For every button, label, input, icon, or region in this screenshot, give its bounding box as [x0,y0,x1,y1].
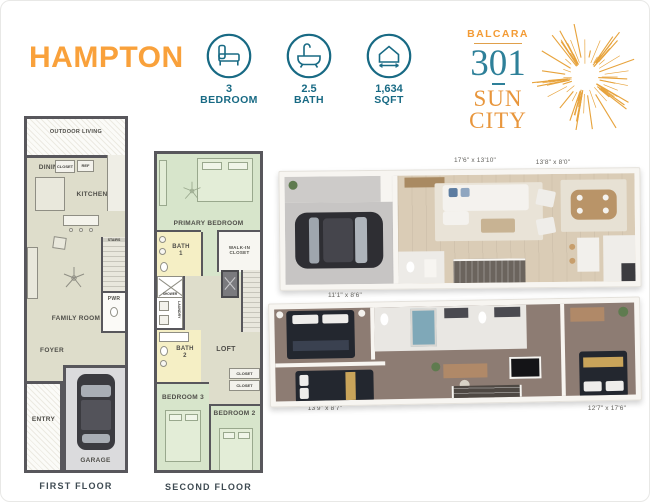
primary-bedroom-label: PRIMARY BEDROOM [157,220,260,227]
island-3d [577,238,599,272]
accent-chair-3d [535,188,556,207]
blanket-3d [293,340,349,351]
car-roof-3d [323,218,353,262]
accent-chair-3d [536,217,557,236]
pillow-3d [461,188,470,197]
logo-city-text: CITY [461,110,535,132]
vanity-3d [424,259,436,277]
bed3-b-3d [295,370,374,402]
toilet-3d [406,261,414,272]
pillow-3d [584,381,602,391]
lamp-3d [276,311,283,318]
bedroom-2-bed-2d [219,428,253,470]
place-setting [577,195,583,201]
room-garage: GARAGE [63,365,125,470]
shower-3d [410,308,437,346]
closet-chip: CLOSET [55,160,75,173]
stat-bath: 2.5 BATH [277,33,341,107]
plan-title: HAMPTON [29,43,184,73]
bed-icon [197,33,261,79]
sink-icon [160,360,167,367]
sunburst-graphic [532,24,638,130]
baths-3d [374,305,527,352]
dryer-icon [159,315,169,325]
ceiling-fan-icon [61,265,87,291]
bedroom-3-bed-2d [165,410,201,462]
desk-3d [443,363,487,378]
powder-3d [398,251,444,283]
garage-3d [285,202,394,285]
closet-chip-upper: CLOSET [229,368,260,379]
washer-icon [159,301,169,311]
bedroom-3-label: BEDROOM 3 [157,394,209,401]
place-setting [603,207,609,213]
car-windshield [81,385,111,397]
place-setting [577,208,583,214]
sqft-icon [357,33,421,79]
interior-wall [275,361,385,367]
car-windshield-3d [355,217,367,263]
sink-icon [159,236,166,243]
bath-icon [277,33,341,79]
room-entry: ENTRY [27,381,63,470]
wall [157,382,209,384]
dining-table [35,177,65,211]
laundry-2d: LAUNDRY [157,298,183,330]
car-roof [81,400,111,430]
coffee-table-3d [481,218,515,232]
pillow-3d [322,314,348,323]
loft-label: LOFT [201,346,251,354]
sink-icon [159,248,166,255]
place-setting [603,194,609,200]
kitchen-counter [107,155,125,211]
car-rear-glass [309,217,319,263]
render-first-floor-3d [278,167,641,291]
porch-3d [284,176,380,203]
bedroom-label: BEDROOM [197,95,261,107]
hampton-floorplan-sheet: HAMPTON 3 BEDROOM 2.5 BATH [0,0,650,502]
toilet-icon [160,262,168,272]
pillow [223,432,235,439]
car-rear-window [82,434,110,443]
render2-floor [274,303,636,402]
dresser-3d [570,307,604,322]
bath-label: BATH [277,95,341,107]
room-bath-2: BATH 2 [157,330,201,382]
logo-brand-text: BALCARA [461,28,535,40]
stool [79,228,83,232]
stairs-second-floor [241,270,260,332]
first-floor-plan: OUTDOOR LIVING DINING CLOSET REF PANTRY … [24,116,128,473]
ceiling-fan-icon [181,180,203,202]
stairs-3d [453,258,525,283]
sqft-label: SQFT [357,95,421,107]
kitchen-island [63,215,99,226]
tv-3d [509,356,541,379]
vanity-3d [494,307,520,317]
plant-3d [431,362,440,371]
stool-3d [569,258,575,264]
stairs-label: STAIRS [103,238,125,242]
sofa-2d [27,247,38,299]
render2-dim-primary: 12'7" x 17'6" [559,405,650,412]
kitchen-counter-3d [603,235,635,281]
primary-bed-2d [197,158,253,202]
throw-3d [583,357,623,368]
pillow [169,414,182,421]
bath-1-label: BATH 1 [167,244,195,258]
plant-3d [288,181,297,190]
pillow-3d [300,388,309,399]
plant-3d [618,307,628,317]
pillow-3d [292,315,318,324]
primary-bed-3d [579,351,628,398]
shower-2d: SHOWER [157,276,183,298]
second-floor-caption: SECOND FLOOR [154,482,263,492]
dining-table-3d [571,189,617,219]
render-second-floor-3d [268,296,642,407]
room-outdoor-living: OUTDOOR LIVING [27,119,125,158]
pillow-3d [299,375,308,386]
render1-dim-dining: 13'8" x 8'0" [505,159,601,166]
vanity-3d [444,308,468,318]
car-3d [295,212,384,269]
logo-sun-text: SUN [461,88,535,110]
pillow [228,162,248,170]
toilet-3d [478,311,486,323]
room-walk-in-closet: WALK-IN CLOSET [219,232,260,272]
stairs-3d [452,385,522,402]
laundry-label: LAUNDRY [177,301,181,318]
pwr-label: PWR [103,297,125,303]
balcara-logo: BALCARA 301 SUN CITY [461,28,535,132]
pillow [185,414,198,421]
storage-2d [221,270,239,298]
foyer-label: FOYER [31,347,73,354]
bed3-a-3d [286,310,355,359]
stat-sqft: 1,634 SQFT [357,33,421,107]
stairs-first-floor: STAIRS [101,237,125,293]
bedroom-2-label: BEDROOM 2 [209,410,260,417]
bath-2-label: BATH 2 [171,346,199,360]
second-floor-plan: PRIMARY BEDROOM BATH 1 WALK-IN CLOSET SH… [154,151,263,473]
armchair-2d [52,236,67,250]
pillow [238,432,250,439]
entry-label: ENTRY [27,416,60,423]
stool [69,228,73,232]
wardrobe-2d [159,160,167,206]
first-floor-caption: FIRST FLOOR [24,481,128,491]
stool [89,228,93,232]
logo-number-text: 301 [461,45,535,82]
main-floor-3d [397,173,635,283]
car-2d [77,374,115,450]
closet-chip-lower: CLOSET [229,380,260,391]
chaise-3d [443,211,469,225]
pillow-3d [606,381,624,391]
family-room-label: FAMILY ROOM [45,315,107,322]
wall [201,232,203,276]
room-bath-1: BATH 1 [157,232,201,276]
tub-2d [159,332,189,342]
pillow [202,162,222,170]
interior-wall [560,304,566,402]
room-powder: PWR [101,293,125,333]
stool-3d [569,244,575,250]
walk-in-closet-label: WALK-IN CLOSET [219,245,260,255]
outdoor-living-label: OUTDOOR LIVING [27,129,125,135]
render1-floor [284,173,635,285]
toilet-icon [160,346,168,356]
stat-bedroom: 3 BEDROOM [197,33,261,107]
pillow-3d [449,188,458,197]
ref-chip: REF [77,160,94,172]
render2-dim-bed3a: 11'1" x 8'6" [297,292,393,299]
garage-label: GARAGE [66,457,125,464]
wall [209,404,260,406]
toilet-3d [380,313,388,325]
fridge-3d [621,263,635,281]
toilet-icon [110,307,118,317]
shower-label: SHOWER [158,292,182,296]
sofa-3d [443,184,529,211]
throw-3d [345,372,356,400]
lamp-3d [358,310,365,317]
